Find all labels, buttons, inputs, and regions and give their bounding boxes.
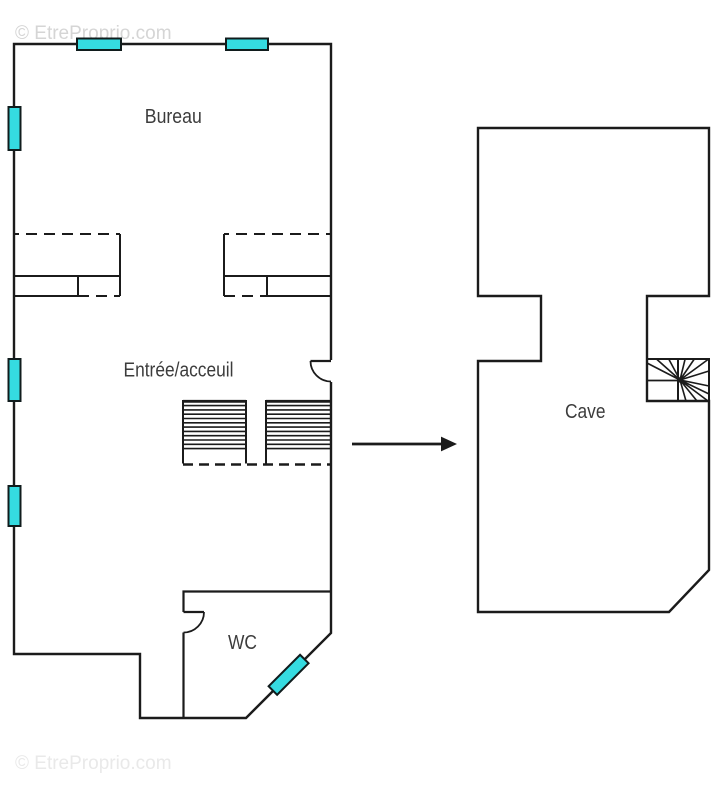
svg-text:Entrée/acceuil: Entrée/acceuil [124, 359, 234, 382]
svg-text:WC: WC [228, 632, 257, 654]
svg-text:Bureau: Bureau [145, 105, 202, 128]
svg-text:© EtreProprio.com: © EtreProprio.com [15, 753, 172, 774]
svg-text:Cave: Cave [565, 401, 606, 423]
